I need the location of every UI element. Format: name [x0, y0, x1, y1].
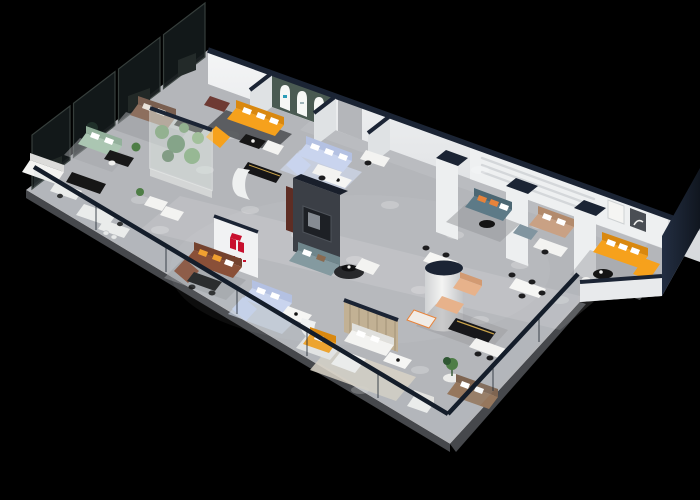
cylinder-cap	[425, 261, 463, 276]
table-decor	[347, 265, 350, 268]
brand-mark-gray	[300, 102, 304, 104]
table-decor	[251, 139, 255, 143]
black-chair	[319, 176, 326, 181]
table-decor	[294, 312, 298, 316]
black-chair	[542, 250, 549, 255]
black-chair	[423, 246, 430, 251]
potted-plant	[443, 357, 451, 365]
red-logo-text-mark	[243, 260, 246, 262]
potted-plant	[136, 188, 144, 196]
black-chair	[365, 161, 372, 166]
black-round-table	[479, 220, 495, 228]
showroom-floorplan-render	[0, 0, 700, 500]
black-chair	[539, 291, 546, 296]
black-chair	[509, 273, 516, 278]
potted-plant	[132, 143, 141, 152]
pillar-body	[436, 158, 458, 240]
brand-mark-blue	[283, 95, 287, 98]
table-decor	[599, 270, 603, 274]
black-chair	[475, 352, 482, 357]
black-chair	[487, 356, 494, 361]
black-chair	[529, 280, 536, 285]
red-logo-glyph	[238, 241, 244, 253]
table-decor	[396, 358, 400, 362]
black-chair	[519, 294, 526, 299]
red-logo-glyph	[230, 238, 236, 250]
black-round-table	[593, 269, 613, 279]
white-chair	[109, 161, 116, 166]
showroom-render-stage	[0, 0, 700, 500]
black-chair	[443, 253, 450, 258]
